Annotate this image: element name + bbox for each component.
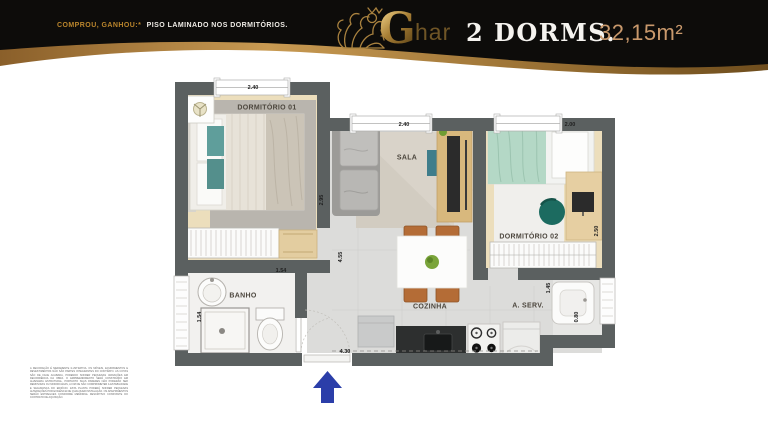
dim-aserv-depth: 1.45 xyxy=(546,283,552,294)
bathroom-sink xyxy=(198,278,226,306)
room-label-sala: SALA xyxy=(397,155,417,162)
dim-banho-depth: 1.54 xyxy=(197,312,203,323)
dim-dorm01-width: 2.40 xyxy=(248,85,259,91)
room-label-dorm01: DORMITÓRIO 01 xyxy=(237,105,296,112)
dorm02-wardrobe xyxy=(490,242,596,268)
dim-entry-width: 4.30 xyxy=(340,349,351,355)
dim-living-depth: 4.55 xyxy=(338,252,344,263)
toilet xyxy=(256,308,284,350)
stove xyxy=(468,324,500,358)
dim-dorm01-depth: 2.95 xyxy=(319,195,325,206)
room-label-dorm02: DORMITÓRIO 02 xyxy=(499,234,558,241)
dim-dorm02-width: 2.00 xyxy=(565,122,576,128)
nightstand xyxy=(186,96,214,123)
dim-sala-width: 2.40 xyxy=(399,122,410,128)
dorm02-window xyxy=(494,114,562,133)
room-label-banho: BANHO xyxy=(229,293,256,300)
double-bed xyxy=(188,112,304,212)
dim-banho-width: 1.54 xyxy=(276,268,287,274)
dorm01-wardrobe xyxy=(187,228,317,258)
dim-dorm02-depth: 2.50 xyxy=(594,226,600,237)
room-label-cozinha: COZINHA xyxy=(413,304,447,311)
room-label-aserv: A. SERV. xyxy=(512,303,544,310)
aserv-window xyxy=(600,278,615,324)
dim-aserv-width: 0.80 xyxy=(574,312,580,323)
fridge xyxy=(358,316,394,347)
banho-window xyxy=(174,276,189,350)
page: COMPROU, GANHOU:* PISO LAMINADO NOS DORM… xyxy=(0,0,768,432)
laundry-tank xyxy=(552,282,594,324)
table-plant-core xyxy=(427,257,433,263)
shower xyxy=(201,308,249,353)
legal-disclaimer: A DECORAÇÃO É MERAMENTE ILUSTRATIVA. OS … xyxy=(30,367,128,400)
entry-arrow-icon xyxy=(313,371,342,403)
tv-sideboard xyxy=(437,126,472,222)
sala-window xyxy=(350,114,432,133)
